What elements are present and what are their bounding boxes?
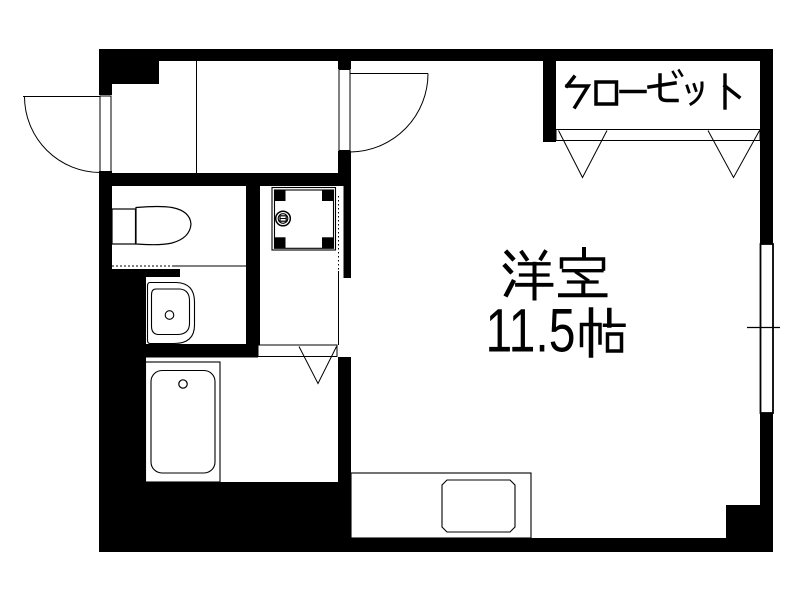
svg-text:11.5: 11.5 xyxy=(486,297,576,365)
